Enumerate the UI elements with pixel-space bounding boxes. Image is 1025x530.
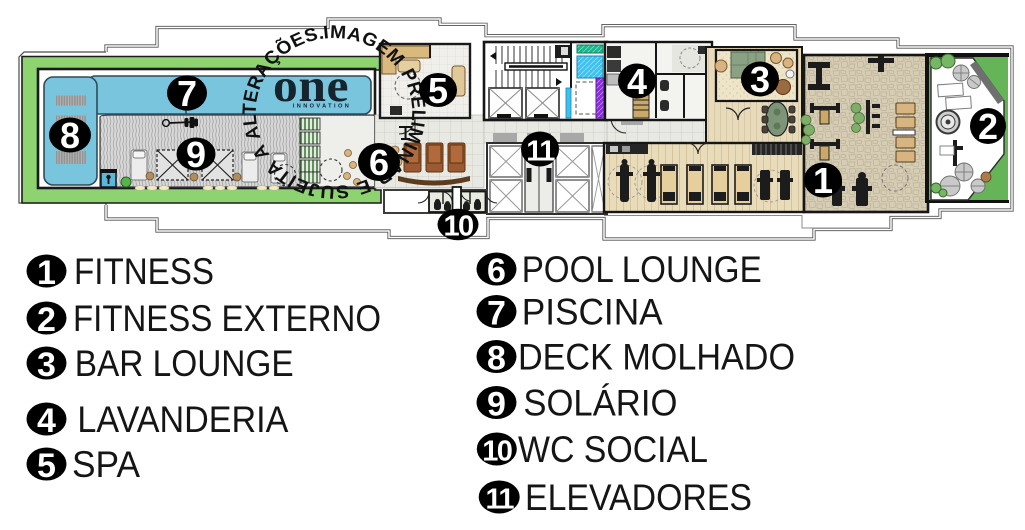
svg-text:POOL LOUNGE: POOL LOUNGE <box>522 249 762 290</box>
svg-text:SOLÁRIO: SOLÁRIO <box>523 383 677 424</box>
svg-text:DECK MOLHADO: DECK MOLHADO <box>518 337 795 378</box>
svg-text:9: 9 <box>487 385 506 423</box>
svg-text:6: 6 <box>369 142 389 183</box>
svg-text:4: 4 <box>37 402 56 440</box>
svg-text:5: 5 <box>428 70 448 111</box>
svg-text:7: 7 <box>487 294 506 332</box>
svg-text:9: 9 <box>186 134 206 175</box>
svg-text:FITNESS: FITNESS <box>74 251 214 292</box>
svg-text:10: 10 <box>482 436 512 468</box>
svg-text:2: 2 <box>978 106 998 147</box>
svg-text:6: 6 <box>487 252 506 290</box>
svg-text:11: 11 <box>526 136 555 168</box>
svg-text:1: 1 <box>37 254 56 292</box>
svg-text:INNOVATION: INNOVATION <box>293 104 351 110</box>
svg-text:8: 8 <box>487 339 506 377</box>
svg-text:7: 7 <box>177 73 197 114</box>
svg-text:SPA: SPA <box>72 444 140 485</box>
svg-text:LAVANDERIA: LAVANDERIA <box>77 399 288 440</box>
svg-text:4: 4 <box>627 61 647 102</box>
svg-text:3: 3 <box>750 59 770 100</box>
svg-text:2: 2 <box>37 301 56 339</box>
svg-text:BAR LOUNGE: BAR LOUNGE <box>75 343 294 384</box>
svg-text:3: 3 <box>37 346 56 384</box>
svg-text:WC SOCIAL: WC SOCIAL <box>518 429 708 470</box>
svg-text:10: 10 <box>443 211 473 243</box>
svg-text:ELEVADORES: ELEVADORES <box>525 477 752 518</box>
svg-text:1: 1 <box>813 160 833 201</box>
svg-text:FITNESS EXTERNO: FITNESS EXTERNO <box>73 298 381 339</box>
svg-text:PISCINA: PISCINA <box>522 292 663 333</box>
svg-text:8: 8 <box>60 115 80 156</box>
svg-text:11: 11 <box>485 484 514 516</box>
svg-text:5: 5 <box>37 447 56 485</box>
